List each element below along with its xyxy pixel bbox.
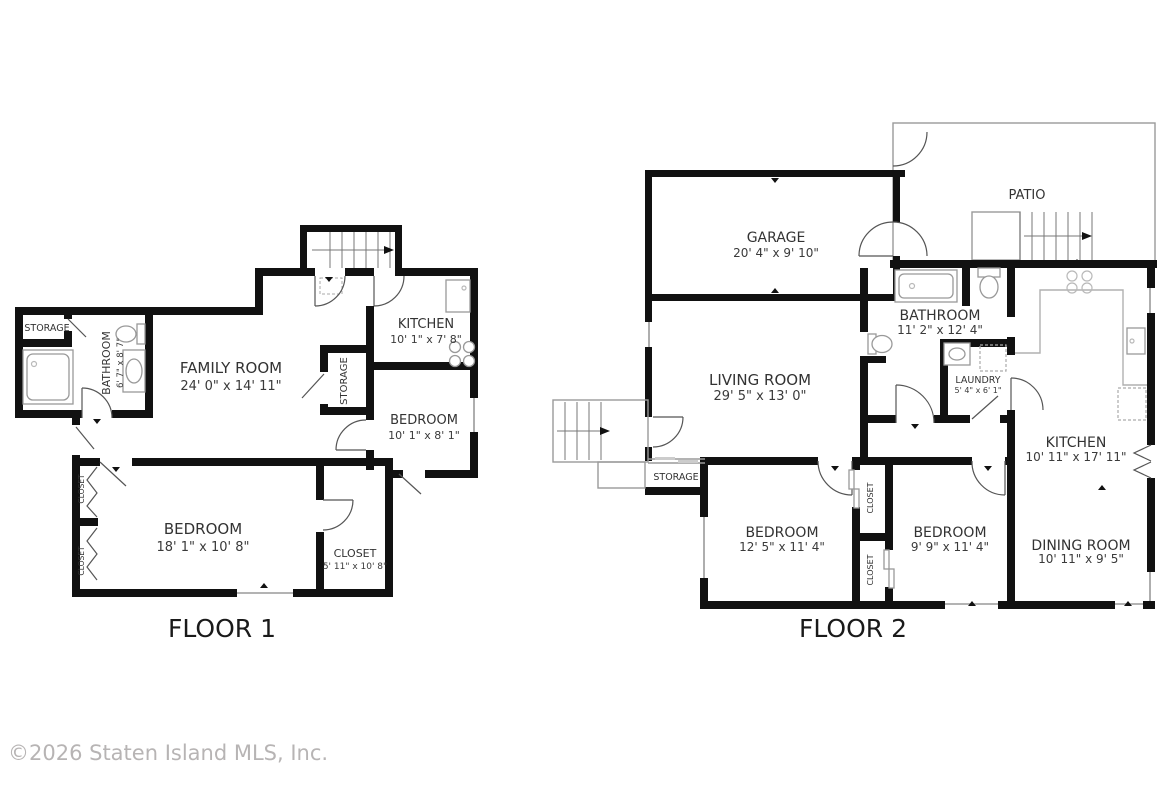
floor1-plan: STORAGE BATHROOM 6' 7" x 8' 7" FAMILY RO… [15,225,478,597]
toilet-icon [868,334,892,354]
closet-b-label: CLOSET [77,546,86,576]
kitchen2-dims: 10' 11" x 17' 11" [1025,450,1126,464]
kitchen-sink-icon [1127,328,1145,354]
bathroom-dims: 6' 7" x 8' 7" [116,338,126,388]
washer-icon [980,345,1006,371]
storage2-label: STORAGE [653,472,698,483]
bedroom-right-label: BEDROOM [913,525,986,541]
floor2-title: FLOOR 2 [799,614,907,643]
shower-icon [23,350,73,404]
storage-left-label: STORAGE [24,323,69,334]
bedroom-right-dims: 9' 9" x 11' 4" [911,540,989,554]
floor1-title: FLOOR 1 [168,614,276,643]
sliding-door-icon [849,470,854,489]
garage-label: GARAGE [747,230,806,246]
stairs-arrow-icon [384,246,394,254]
patio-label: PATIO [1009,188,1046,203]
stairs-arrow-icon [600,427,610,435]
bedroom-left-dims: 12' 5" x 11' 4" [739,540,825,554]
laundry-dims: 5' 4" x 6' 1" [954,386,1001,395]
bedroom-large-label: BEDROOM [164,520,242,538]
patio-stairs [1020,212,1092,260]
floor1-stairs [312,232,394,294]
floorplan-canvas: STORAGE BATHROOM 6' 7" x 8' 7" FAMILY RO… [0,0,1176,787]
bedroom-left-label: BEDROOM [745,525,818,541]
family-room-label: FAMILY ROOM [180,359,282,377]
closet-main-label: CLOSET [334,547,377,560]
kitchen2-label: KITCHEN [1046,435,1107,451]
stairs-arrow-icon [1082,232,1092,240]
laundry-label: LAUNDRY [955,375,1000,386]
bathroom2-label: BATHROOM [899,308,980,324]
sliding-door-icon [884,550,889,569]
bedroom-small-dims: 10' 1" x 8' 1" [388,429,460,442]
double-door-icon [1134,462,1151,478]
living-room-label: LIVING ROOM [709,371,811,389]
closet2-a-label: CLOSET [866,482,875,513]
double-door-icon [1134,445,1151,461]
kitchen-dims: 10' 1" x 7' 8" [390,333,462,346]
kitchen-label: KITCHEN [398,317,454,332]
family-room-dims: 24' 0" x 14' 11" [180,379,281,394]
vanity-sink-icon [123,350,145,392]
kitchen-sink-icon [446,280,470,312]
closet-main-dims: 5' 11" x 10' 8" [323,562,387,572]
floor2-plan: GARAGE 20' 4" x 9' 10" PATIO LIVING ROOM… [553,123,1157,609]
sliding-door-icon [889,569,894,588]
garage-dims: 20' 4" x 9' 10" [733,246,819,260]
bifold-door-icon [87,467,97,517]
bifold-door-icon [87,528,97,580]
closet2-b-label: CLOSET [866,554,875,585]
shower-icon [895,270,957,302]
bathroom-label: BATHROOM [100,331,113,395]
entry-stairs [553,400,648,488]
dining-room-dims: 10' 11" x 9' 5" [1038,552,1124,566]
bedroom-small-label: BEDROOM [390,413,458,428]
fridge-icon [1118,388,1146,420]
floor2-doors [653,132,1151,588]
bathroom2-dims: 11' 2" x 12' 4" [897,323,983,337]
bedroom-large-dims: 18' 1" x 10' 8" [157,540,250,555]
closet-a-label: CLOSET [77,474,86,504]
laundry-sink-icon [944,343,970,365]
toilet-icon [978,268,1000,298]
sliding-door-icon [854,489,859,508]
living-room-dims: 29' 5" x 13' 0" [714,389,807,404]
storage-center-label: STORAGE [339,357,350,405]
copyright-text: ©2026 Staten Island MLS, Inc. [8,741,328,765]
